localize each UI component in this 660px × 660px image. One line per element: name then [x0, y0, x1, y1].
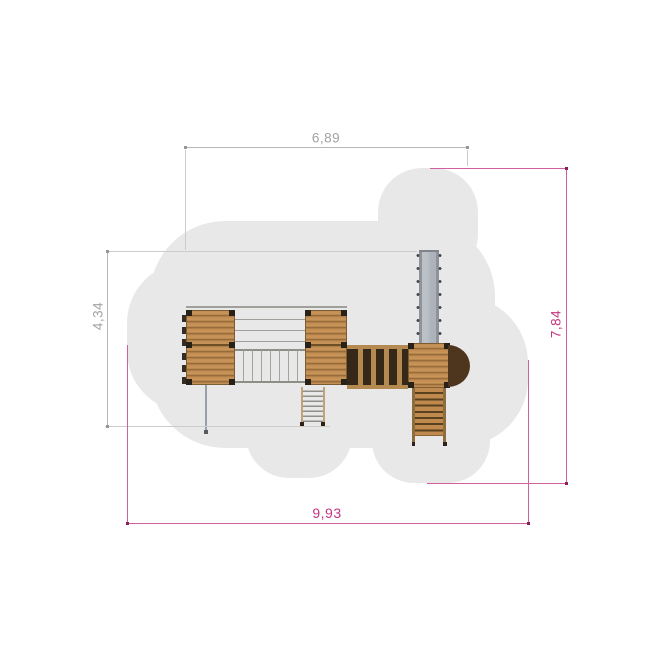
left-platform-deck — [186, 310, 235, 385]
dimension-line — [107, 251, 108, 426]
rung-bridge-rail — [235, 381, 305, 383]
dimension-line — [185, 147, 467, 148]
right-platform-deck — [305, 310, 347, 385]
overhead-bar — [235, 319, 305, 320]
climb-hold — [182, 353, 186, 360]
slide-chute — [419, 250, 439, 343]
climb-hold — [182, 339, 186, 346]
extension-line — [107, 251, 417, 252]
handrail-line — [186, 306, 347, 308]
stairs — [412, 388, 446, 436]
climb-hold — [182, 377, 186, 384]
extension-line — [430, 168, 566, 169]
dimension-right-value: 7,84 — [549, 310, 564, 338]
dimension-line — [566, 168, 567, 483]
extension-line — [127, 345, 128, 523]
extension-line — [105, 426, 330, 427]
access-ladder — [301, 387, 325, 425]
slat-bridge — [347, 345, 408, 389]
safety-zone-lobe-bottom-left — [246, 392, 352, 478]
climb-hold — [182, 365, 186, 372]
climb-hold — [182, 315, 186, 322]
dimension-left-value: 4,34 — [91, 302, 106, 330]
overhead-bar — [235, 330, 305, 331]
overhead-bar — [235, 341, 305, 342]
slide-bolts-left — [416, 253, 420, 341]
extension-line — [185, 150, 186, 250]
extension-line — [528, 360, 529, 523]
dimension-line — [127, 523, 528, 524]
dimension-bottom-value: 9,93 — [312, 505, 341, 521]
extension-line — [467, 150, 468, 166]
dimension-top-value: 6,89 — [312, 131, 340, 146]
tower-platform — [408, 343, 450, 388]
plan-drawing-canvas: 6,89 4,34 7,84 9,93 — [0, 0, 660, 660]
extension-line — [427, 483, 566, 484]
climb-hold — [182, 327, 186, 334]
slide-bolts-right — [438, 253, 442, 341]
